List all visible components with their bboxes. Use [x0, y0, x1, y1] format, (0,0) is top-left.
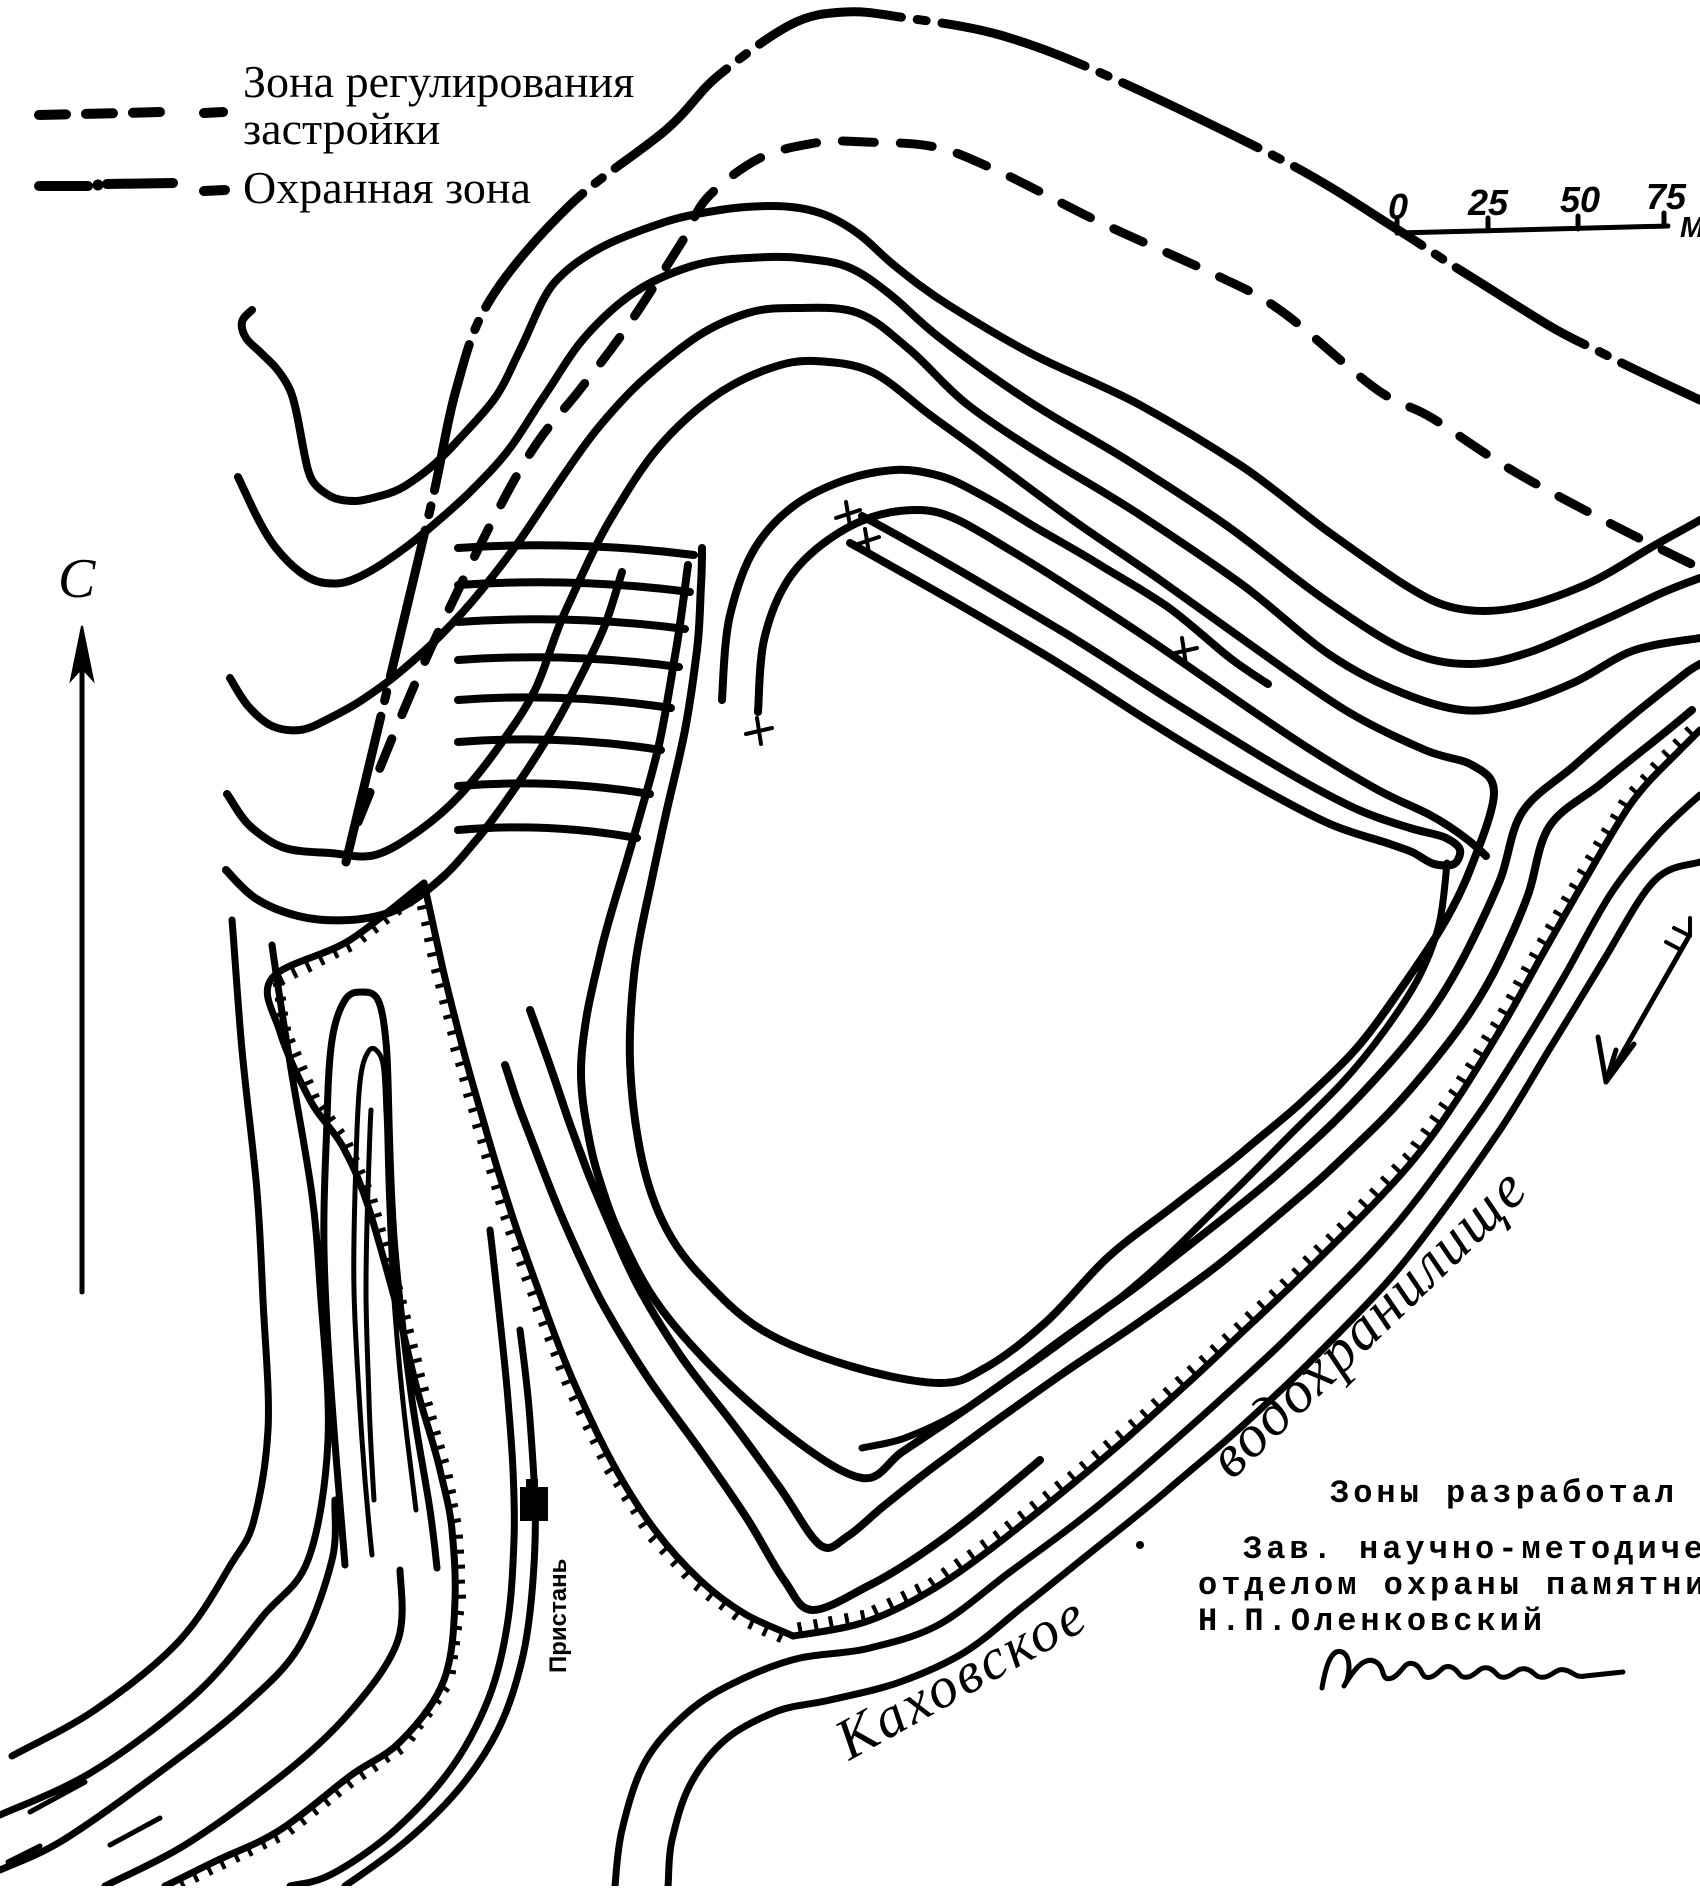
svg-text:Зона регулирования: Зона регулирования	[243, 56, 634, 107]
svg-text:25: 25	[1467, 182, 1509, 223]
svg-text:Охранная зона: Охранная зона	[243, 162, 531, 213]
svg-text:отделом охраны памятни: отделом охраны памятни	[1198, 1567, 1700, 1604]
svg-text:Зоны разработал: Зоны разработал	[1330, 1475, 1678, 1512]
svg-text:Н.П.Оленковский: Н.П.Оленковский	[1198, 1603, 1546, 1640]
svg-text:50: 50	[1560, 179, 1600, 220]
svg-text:C: C	[58, 548, 96, 610]
svg-text:застройки: застройки	[243, 103, 440, 154]
svg-text:Зав. научно-методиче: Зав. научно-методиче	[1243, 1531, 1700, 1568]
svg-text:Пристань: Пристань	[545, 1559, 572, 1673]
svg-text:М: М	[1680, 212, 1700, 244]
svg-text:75: 75	[1646, 176, 1687, 217]
